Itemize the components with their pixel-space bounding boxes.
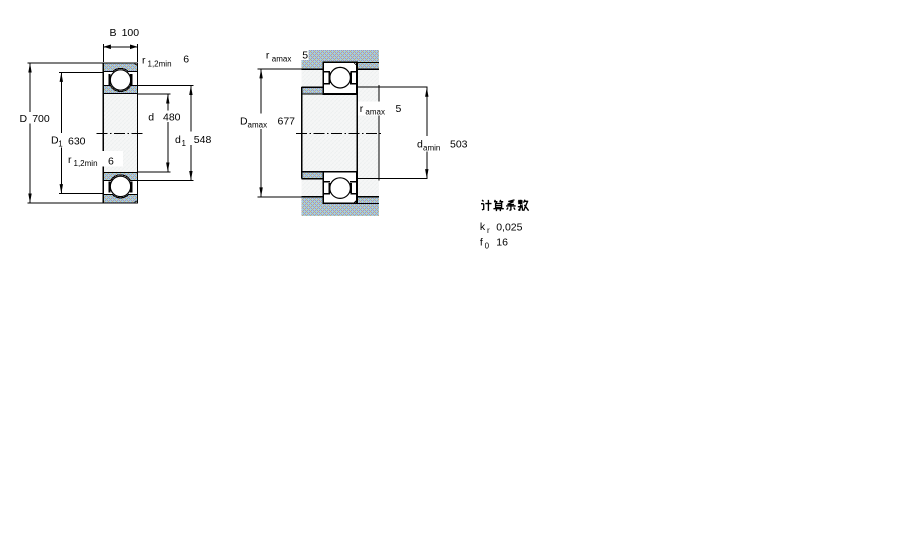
svg-text:100: 100 [122,27,140,39]
svg-text:r: r [266,50,270,62]
svg-text:0,025: 0,025 [496,221,522,233]
svg-text:d: d [148,112,154,124]
svg-text:amax: amax [272,54,292,63]
svg-text:5: 5 [396,103,402,115]
svg-text:r: r [487,226,490,235]
svg-text:677: 677 [278,116,296,128]
svg-text:0: 0 [485,242,490,251]
svg-text:D: D [20,113,28,125]
svg-text:r: r [68,154,72,166]
svg-text:5: 5 [302,50,308,62]
svg-text:548: 548 [194,134,212,146]
svg-text:480: 480 [163,112,181,124]
svg-text:1: 1 [182,139,187,148]
svg-text:1,2min: 1,2min [74,159,98,168]
svg-text:700: 700 [32,113,50,125]
svg-text:6: 6 [108,156,114,168]
svg-text:d: d [175,134,181,146]
svg-text:f: f [480,236,483,248]
svg-text:r: r [360,103,364,115]
svg-text:B: B [110,27,117,39]
svg-text:amax: amax [365,108,385,117]
svg-text:amax: amax [248,120,268,129]
svg-text:amin: amin [423,143,440,152]
svg-text:r: r [142,54,146,66]
svg-text:1: 1 [58,139,63,148]
svg-text:630: 630 [68,136,86,148]
svg-text:k: k [480,221,486,233]
svg-text:1,2min: 1,2min [148,59,172,68]
svg-text:6: 6 [183,54,189,66]
svg-text:16: 16 [496,237,508,249]
svg-text:503: 503 [450,139,468,151]
